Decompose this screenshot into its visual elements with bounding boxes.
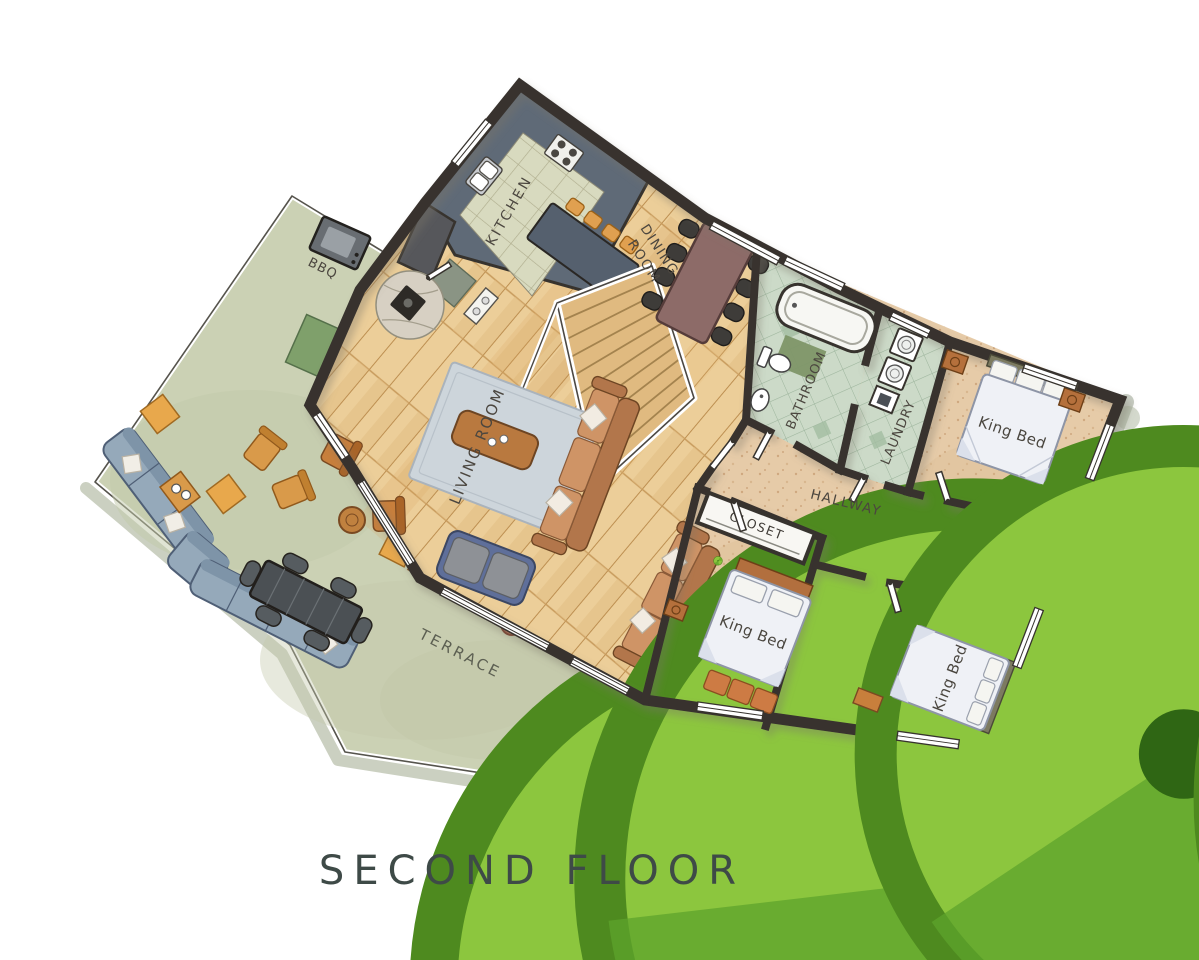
round-side-table <box>339 507 365 533</box>
floor-plan-figure: CLOSET CLOSET CLOSET <box>0 0 1199 960</box>
floor-plan-page: CLOSET CLOSET CLOSET <box>0 0 1199 960</box>
page-title: SECOND FLOOR <box>319 848 745 894</box>
plant <box>714 556 723 565</box>
